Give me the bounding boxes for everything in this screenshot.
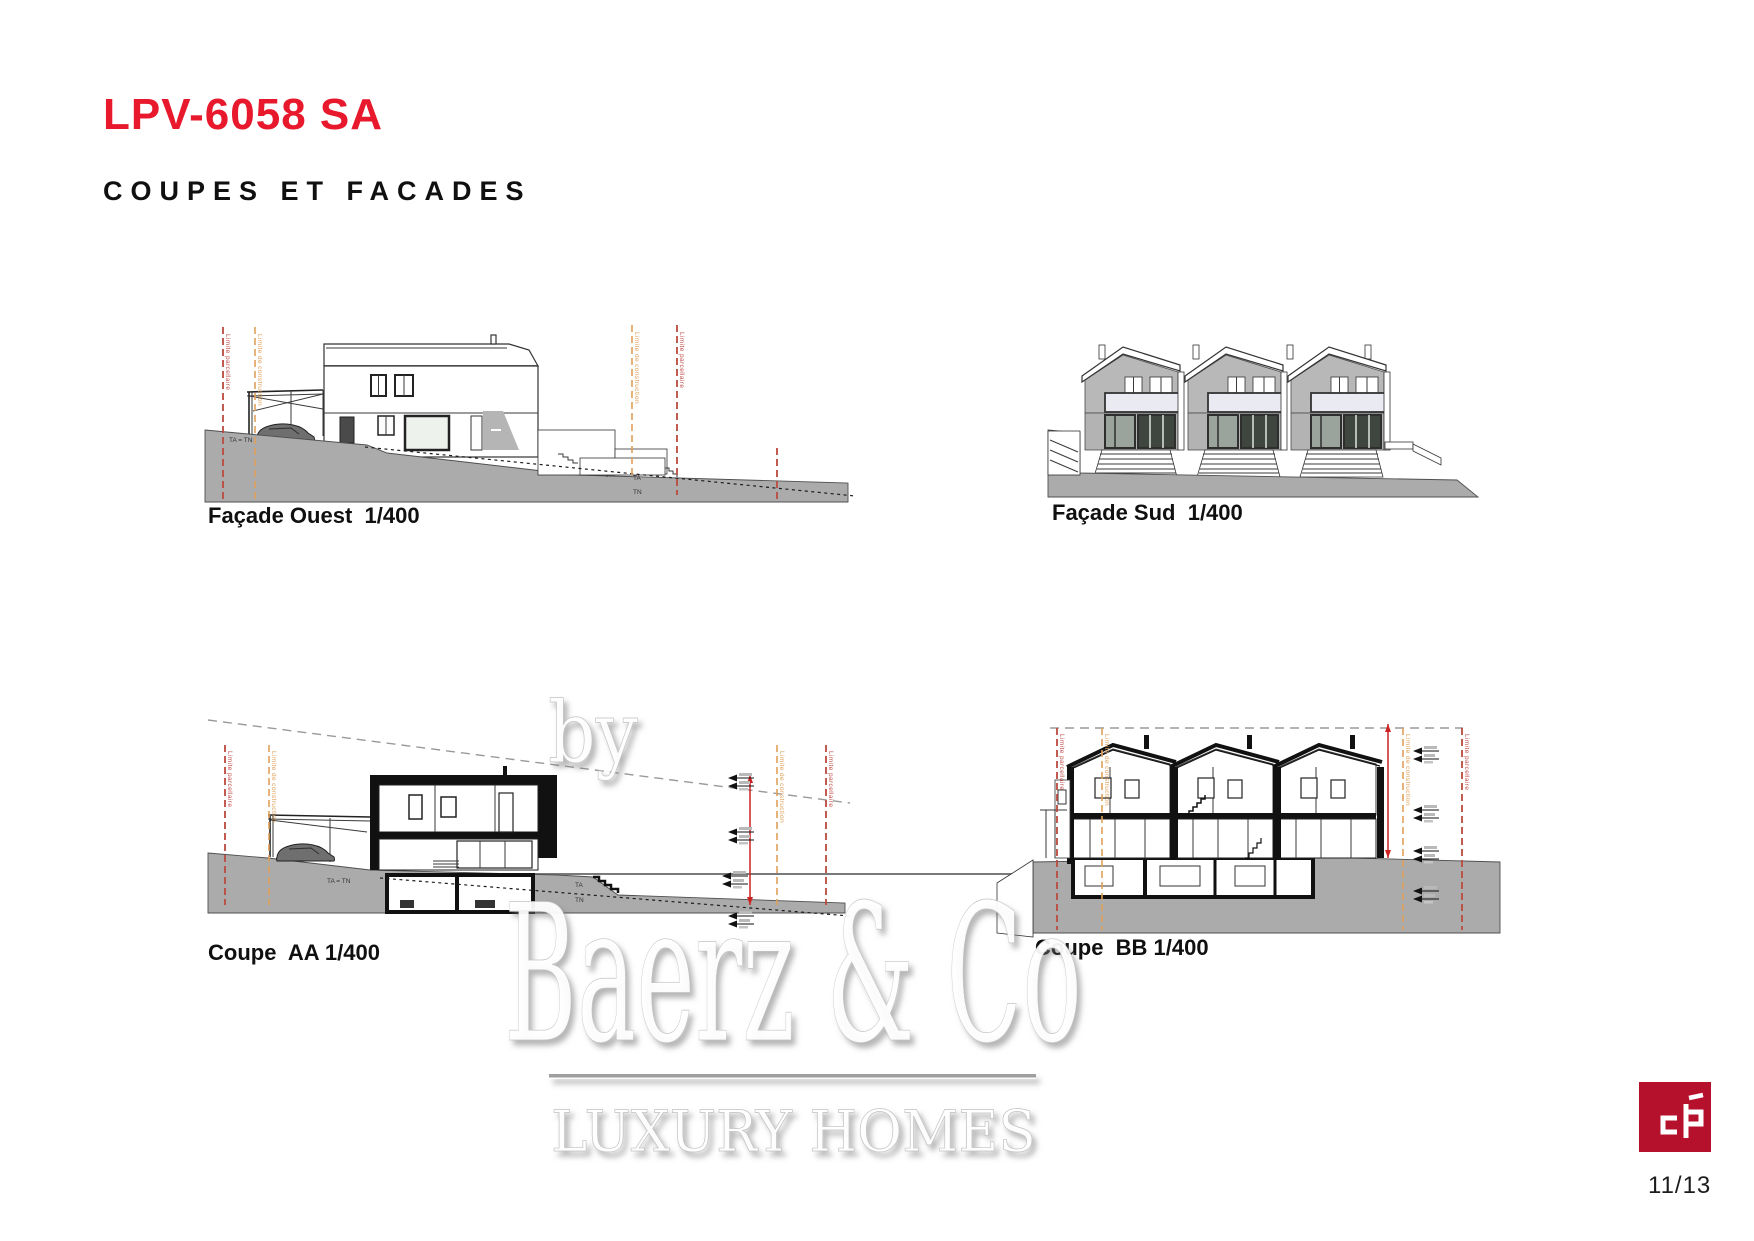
ta-tn-label: TA = TN xyxy=(229,437,253,444)
limite-construction-label: Limite de construction xyxy=(778,751,785,823)
facade-sud-label: Façade Sud 1/400 xyxy=(1052,500,1243,526)
cp-monogram-icon xyxy=(1639,1082,1711,1152)
limite-parcellaire-label: Limite parcellaire xyxy=(827,751,834,807)
limite-parcellaire-label: Limite parcellaire xyxy=(1463,734,1470,790)
garage-outline xyxy=(997,860,1033,937)
limite-construction-label: Limite de construction xyxy=(1103,734,1110,806)
limite-parcellaire-label: Limite parcellaire xyxy=(224,334,231,390)
limite-parcellaire-label: Limite parcellaire xyxy=(226,751,233,807)
limite-construction-label: Limite de construction xyxy=(1404,734,1411,806)
facade-ouest-drawing: Limite parcellaire Limite de constructio… xyxy=(195,278,860,528)
page-title: LPV-6058 SA xyxy=(103,90,383,140)
watermark-divider-line xyxy=(549,1074,1036,1078)
coupe-bb-building-section xyxy=(1040,735,1384,864)
coupe-aa-basement xyxy=(387,875,533,912)
facade-sud-houses xyxy=(1082,347,1390,477)
page-subtitle: COUPES ET FACADES xyxy=(103,176,532,207)
limite-construction-label: Limite de construction xyxy=(256,334,263,406)
coupe-bb-drawing: Limite parcellaire Limite de constructio… xyxy=(905,640,1505,940)
limite-parcellaire-label: Limite parcellaire xyxy=(678,332,685,388)
ta-label: TA xyxy=(633,475,641,482)
watermark-tagline: LUXURY HOMES xyxy=(551,1099,1036,1165)
limite-construction-label: Limite de construction xyxy=(633,332,640,404)
coupe-aa-drawing: Limite parcellaire Limite de constructio… xyxy=(195,635,860,940)
tn-label: TN xyxy=(575,897,584,904)
ta-tn-label: TA = TN xyxy=(327,878,351,885)
limite-construction-label: Limite de construction xyxy=(270,751,277,823)
car-silhouette xyxy=(277,844,335,861)
facade-sud-right-terrace xyxy=(1385,442,1441,465)
tn-label: TN xyxy=(633,489,642,496)
facade-ouest-label: Façade Ouest 1/400 xyxy=(208,503,420,529)
coupe-bb-label: Coupe BB 1/400 xyxy=(1035,935,1209,961)
coupe-aa-building-section xyxy=(268,766,557,870)
facade-ouest-terrace xyxy=(538,430,677,477)
coupe-aa-label: Coupe AA 1/400 xyxy=(208,940,380,966)
facade-sud-retaining-wall xyxy=(1048,431,1080,475)
ta-label: TA xyxy=(575,882,583,889)
limite-parcellaire-label: Limite parcellaire xyxy=(1058,734,1065,790)
page-number: 11/13 xyxy=(1648,1172,1711,1200)
coupe-bb-basement xyxy=(1073,858,1313,897)
